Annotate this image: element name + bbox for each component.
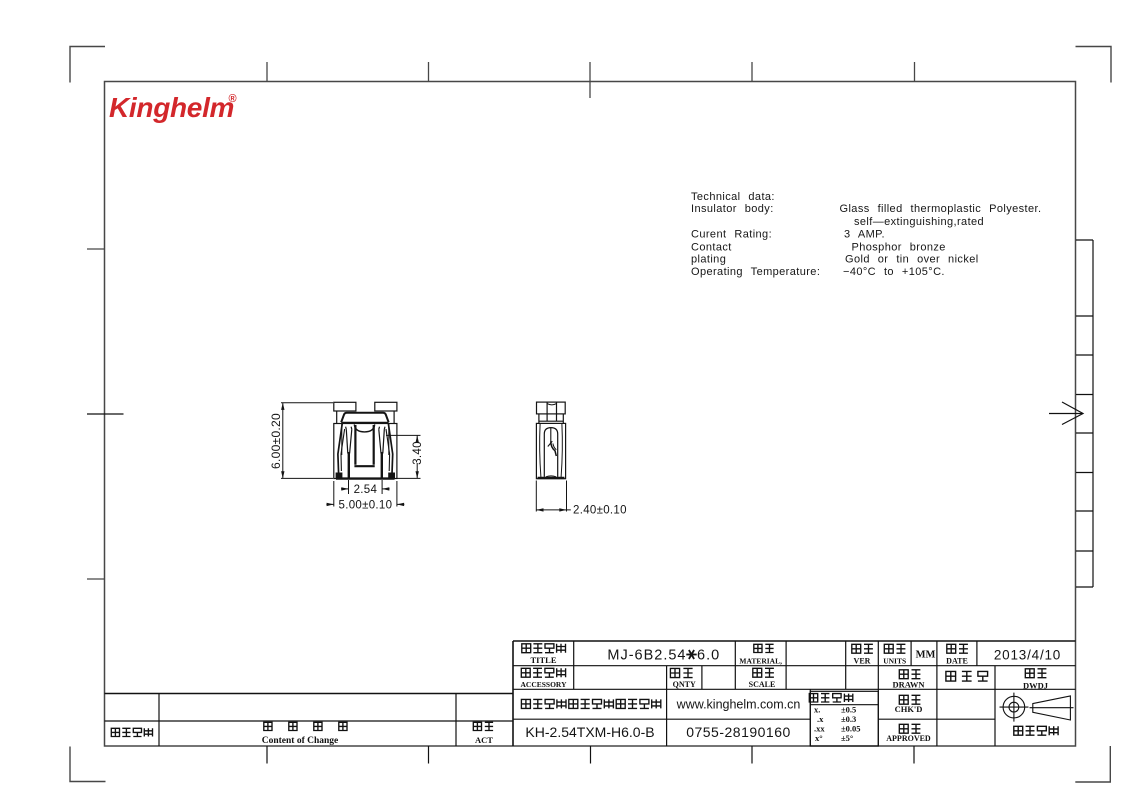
svg-text:VER: VER [854,657,871,666]
svg-text:Glass filled thermoplastic Pol: Glass filled thermoplastic Polyester. [840,203,1042,215]
svg-text:±0.05: ±0.05 [841,724,861,734]
svg-text:SCALE: SCALE [749,680,776,689]
svg-text:ACT: ACT [475,735,493,745]
svg-text:Kinghelm: Kinghelm [109,92,234,123]
svg-text:DRAWN: DRAWN [892,680,925,690]
svg-text:−40°C to +105°C.: −40°C to +105°C. [843,266,945,278]
svg-text:2.40±0.10: 2.40±0.10 [573,505,627,517]
svg-text:®: ® [229,93,237,105]
svg-text:x°: x° [815,733,823,743]
svg-text:Operating Temperature:: Operating Temperature: [691,266,820,278]
svg-text:6.00±0.20: 6.00±0.20 [269,413,283,469]
svg-text:0755-28190160: 0755-28190160 [686,724,791,740]
svg-text:self—extinguishing,rated: self—extinguishing,rated [854,216,984,228]
svg-text:DWDJ: DWDJ [1023,681,1049,691]
svg-text:Phosphor bronze: Phosphor bronze [852,242,946,254]
svg-text:MM: MM [916,650,936,661]
svg-text:2.54: 2.54 [354,484,378,496]
svg-text:KH-2.54TXM-H6.0-B: KH-2.54TXM-H6.0-B [525,724,654,740]
svg-text:5.00±0.10: 5.00±0.10 [339,499,393,511]
svg-text:6.0: 6.0 [697,648,720,664]
svg-text:MJ-6B2.54: MJ-6B2.54 [607,648,686,664]
svg-text:3 AMP.: 3 AMP. [844,229,885,241]
svg-text:APPROVED: APPROVED [886,734,931,743]
svg-text:Curent Rating:: Curent Rating: [691,229,772,241]
svg-text:DATE: DATE [946,657,968,666]
svg-text:2013/4/10: 2013/4/10 [994,648,1061,663]
svg-text:CHK'D: CHK'D [895,704,923,714]
svg-text:Contact: Contact [691,242,732,254]
svg-text:.x: .x [817,714,824,724]
svg-text:3.40: 3.40 [412,441,424,465]
svg-text:QNTY: QNTY [673,680,696,689]
svg-text:www.kinghelm.com.cn: www.kinghelm.com.cn [676,698,801,712]
svg-text:x.: x. [814,705,820,715]
svg-text:ACCESSORY: ACCESSORY [521,680,568,689]
svg-text:.xx: .xx [814,724,825,734]
svg-text:±5°: ±5° [841,733,853,743]
svg-text:±0.3: ±0.3 [841,714,856,724]
svg-text:UNITS: UNITS [883,657,906,666]
svg-text:plating: plating [691,254,726,266]
svg-text:MATERIAL,: MATERIAL, [739,657,782,666]
svg-text:Technical data:: Technical data: [691,191,775,203]
svg-text:Insulator body:: Insulator body: [691,203,774,215]
svg-text:±0.5: ±0.5 [841,705,856,715]
svg-text:Gold or tin over nickel: Gold or tin over nickel [845,254,979,266]
svg-text:Content of Change: Content of Change [262,736,339,746]
svg-text:TITLE: TITLE [531,655,557,665]
